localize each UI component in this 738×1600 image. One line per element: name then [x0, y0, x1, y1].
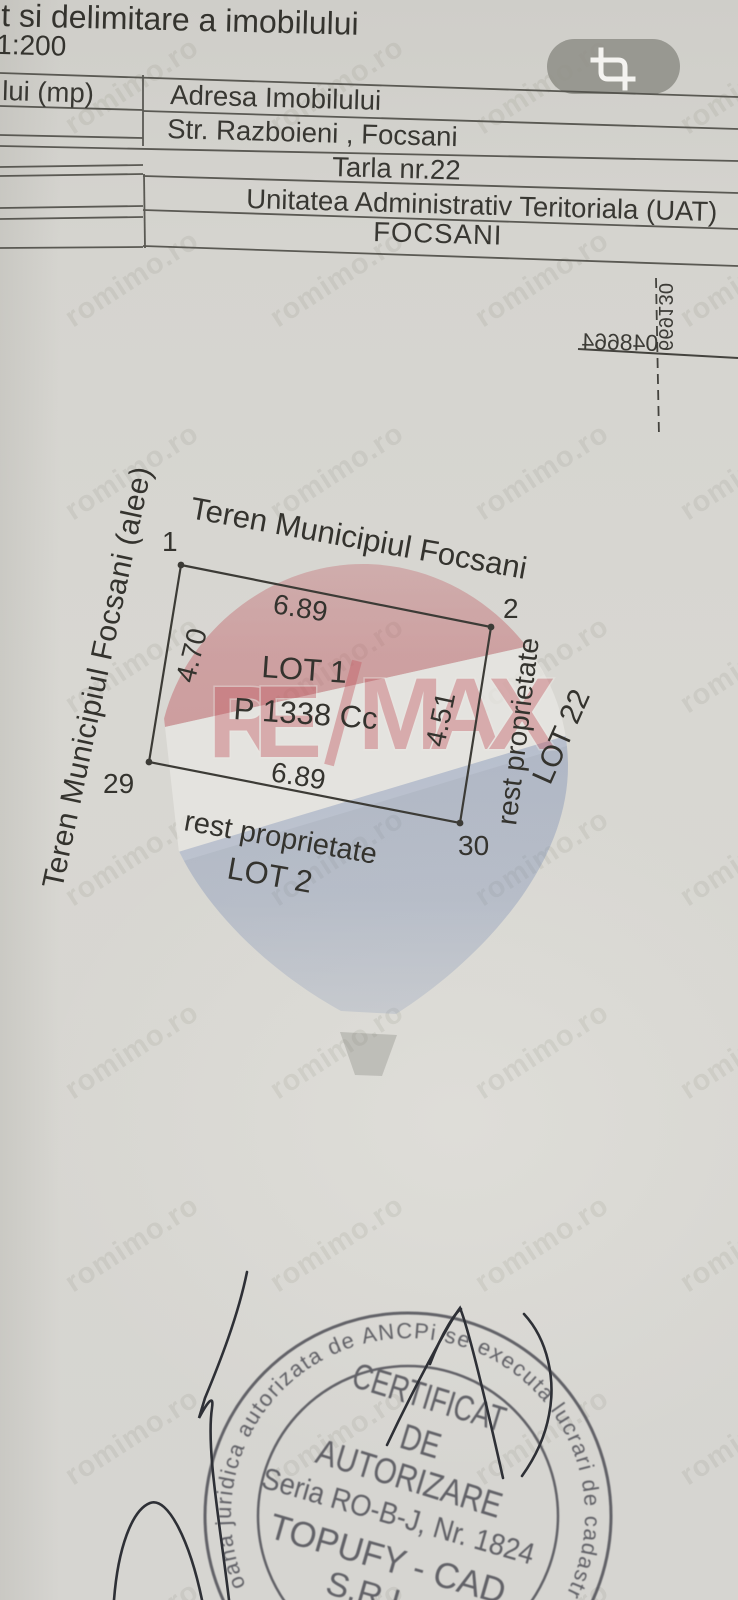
svg-text:Adresa Imobilului: Adresa Imobilului [170, 79, 382, 116]
svg-text:LOT 1: LOT 1 [261, 649, 349, 690]
svg-text:romimo.ro: romimo.ro [59, 1382, 204, 1492]
svg-text:romimo.ro: romimo.ro [59, 1189, 204, 1299]
svg-text:romimo.ro: romimo.ro [674, 31, 738, 141]
svg-text:romimo.ro: romimo.ro [469, 1189, 614, 1299]
svg-text:romimo.ro: romimo.ro [469, 996, 614, 1106]
svg-text:romimo.ro: romimo.ro [264, 1189, 409, 1299]
svg-text:669130: 669130 [654, 283, 676, 351]
svg-text:1: 1 [162, 526, 178, 557]
svg-text:romimo.ro: romimo.ro [674, 1575, 738, 1600]
svg-text:30: 30 [458, 830, 489, 861]
svg-text:Tarla nr.22: Tarla nr.22 [332, 151, 461, 186]
svg-text:1:200: 1:200 [0, 29, 67, 62]
svg-text:romimo.ro: romimo.ro [674, 803, 738, 913]
svg-text:lui (mp): lui (mp) [2, 75, 95, 109]
svg-text:romimo.ro: romimo.ro [674, 1382, 738, 1492]
svg-text:romimo.ro: romimo.ro [59, 1575, 204, 1600]
svg-text:048664: 048664 [581, 328, 659, 356]
svg-text:romimo.ro: romimo.ro [469, 417, 614, 527]
svg-text:romimo.ro: romimo.ro [674, 996, 738, 1106]
svg-text:romimo.ro: romimo.ro [59, 996, 204, 1106]
svg-text:romimo.ro: romimo.ro [674, 1189, 738, 1299]
svg-text:romimo.ro: romimo.ro [674, 417, 738, 527]
svg-text:romimo.ro: romimo.ro [59, 224, 204, 334]
svg-text:romimo.ro: romimo.ro [674, 610, 738, 720]
svg-text:FOCSANI: FOCSANI [373, 216, 503, 251]
svg-text:29: 29 [103, 768, 134, 799]
svg-text:2: 2 [503, 593, 519, 624]
svg-text:romimo.ro: romimo.ro [674, 224, 738, 334]
